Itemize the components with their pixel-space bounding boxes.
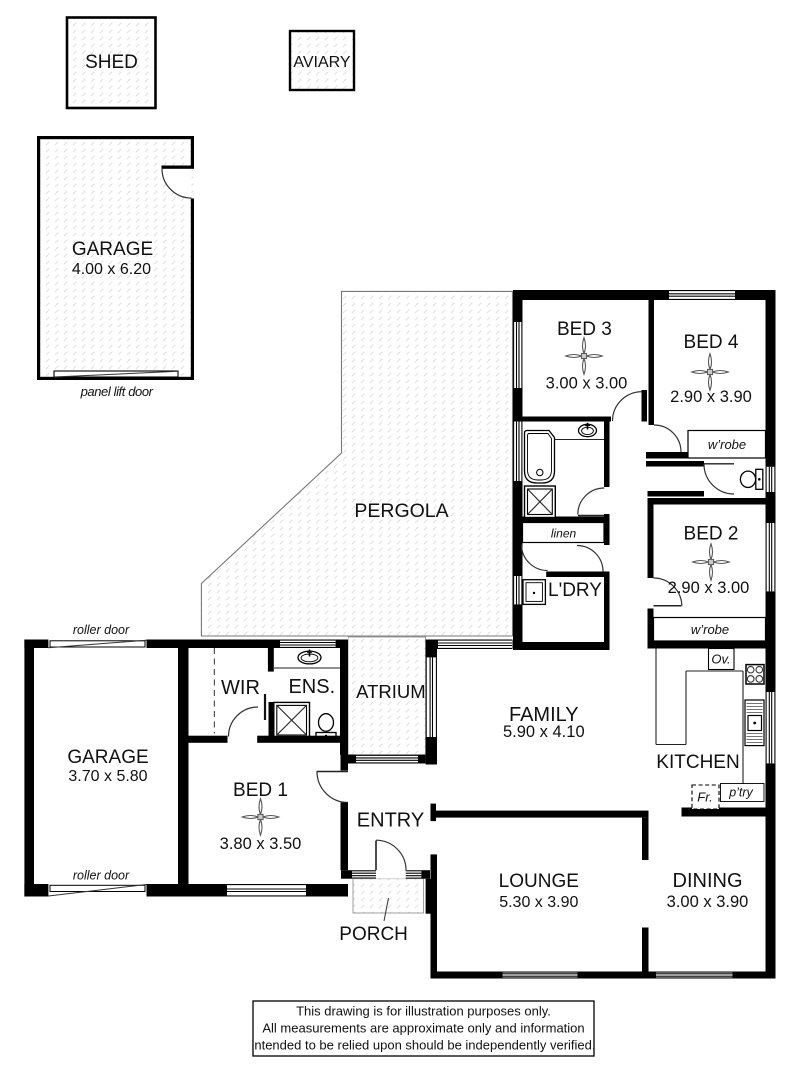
svg-text:This drawing is for illustrati: This drawing is for illustration purpose…: [296, 1004, 551, 1019]
svg-text:5.30 x 3.90: 5.30 x 3.90: [499, 894, 578, 911]
svg-text:roller door: roller door: [73, 623, 130, 637]
svg-text:linen: linen: [551, 527, 577, 541]
svg-text:SHED: SHED: [85, 52, 138, 73]
svg-text:AVIARY: AVIARY: [293, 54, 351, 71]
svg-text:5.90 x 4.10: 5.90 x 4.10: [503, 723, 585, 741]
svg-text:All measurements are approxima: All measurements are approximate only an…: [262, 1021, 584, 1036]
svg-text:BED 2: BED 2: [684, 524, 739, 545]
svg-text:BED 3: BED 3: [557, 319, 612, 340]
svg-text:Fr.: Fr.: [697, 790, 712, 805]
svg-text:3.00 x 3.90: 3.00 x 3.90: [667, 893, 749, 911]
svg-text:KITCHEN: KITCHEN: [656, 752, 739, 773]
svg-text:4.00 x 6.20: 4.00 x 6.20: [72, 261, 151, 278]
svg-text:3.00 x 3.00: 3.00 x 3.00: [546, 375, 628, 393]
svg-text:3.70 x 5.80: 3.70 x 5.80: [68, 768, 147, 785]
svg-text:p’try: p’try: [728, 786, 753, 800]
svg-text:DINING: DINING: [673, 870, 743, 892]
svg-text:roller door: roller door: [73, 869, 130, 883]
svg-text:intended to be relied upon sho: intended to be relied upon should be ind…: [251, 1038, 595, 1053]
svg-text:ATRIUM: ATRIUM: [356, 681, 426, 702]
svg-text:GARAGE: GARAGE: [72, 239, 153, 260]
svg-text:PERGOLA: PERGOLA: [354, 500, 448, 522]
svg-text:panel lift door: panel lift door: [80, 384, 154, 399]
svg-text:3.80 x 3.50: 3.80 x 3.50: [220, 835, 302, 853]
svg-text:ENS.: ENS.: [288, 676, 335, 698]
svg-text:Ov.: Ov.: [711, 652, 730, 667]
svg-text:BED 4: BED 4: [684, 332, 739, 353]
svg-text:WIR: WIR: [221, 677, 260, 699]
svg-text:w’robe: w’robe: [691, 622, 729, 637]
svg-text:2.90 x 3.90: 2.90 x 3.90: [670, 388, 752, 406]
svg-text:ENTRY: ENTRY: [357, 810, 424, 832]
svg-text:LOUNGE: LOUNGE: [499, 871, 579, 892]
svg-text:2.90 x 3.00: 2.90 x 3.00: [668, 579, 750, 597]
svg-text:GARAGE: GARAGE: [67, 747, 148, 768]
svg-text:PORCH: PORCH: [339, 924, 408, 945]
svg-text:w’robe: w’robe: [708, 437, 746, 452]
svg-text:L'DRY: L'DRY: [548, 580, 602, 601]
